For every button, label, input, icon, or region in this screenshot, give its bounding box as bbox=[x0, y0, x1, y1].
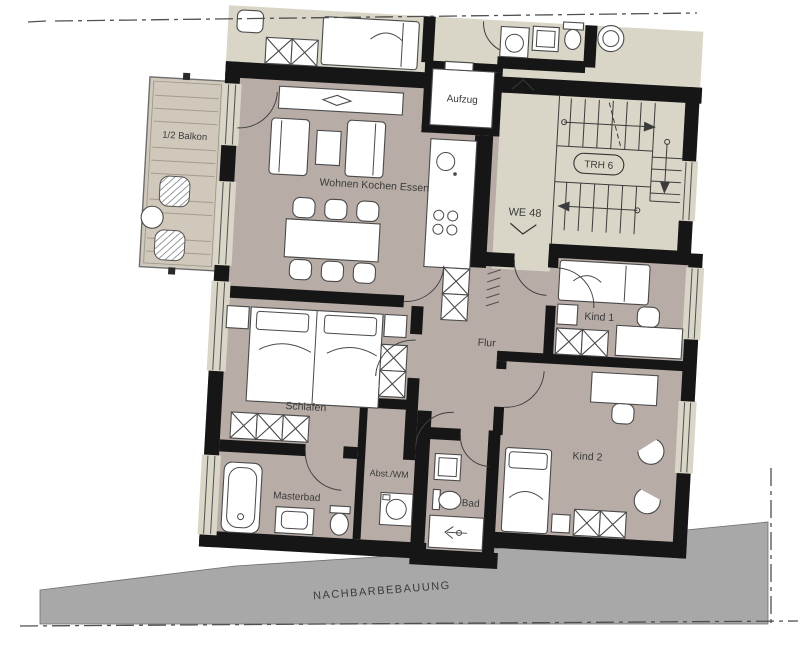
balcony-table bbox=[141, 206, 164, 229]
sink bbox=[532, 26, 559, 51]
washing-machine bbox=[500, 26, 530, 58]
child-room-1-label: Kind 1 bbox=[584, 311, 615, 325]
shower bbox=[428, 515, 484, 550]
wardrobe-module bbox=[581, 329, 608, 356]
bathtub bbox=[221, 462, 263, 534]
window bbox=[677, 161, 698, 222]
nightstand bbox=[551, 514, 570, 533]
chair bbox=[353, 263, 376, 284]
balcony-post bbox=[183, 73, 190, 80]
floor-plan-canvas: 1/2 Balkon bbox=[0, 0, 800, 647]
bedroom-label: Schlafen bbox=[285, 400, 327, 414]
wardrobe-module bbox=[599, 511, 626, 538]
bath-label: Bad bbox=[461, 498, 479, 510]
wardrobe-module bbox=[265, 37, 292, 64]
balcony-chair bbox=[159, 176, 191, 208]
balcony: 1/2 Balkon bbox=[138, 71, 226, 277]
chair bbox=[324, 199, 347, 220]
chair bbox=[237, 10, 264, 33]
bed bbox=[558, 260, 650, 305]
wardrobe-module bbox=[379, 370, 406, 397]
wardrobe-module bbox=[291, 39, 318, 66]
nightstand bbox=[384, 314, 407, 337]
tall-cabinet bbox=[441, 294, 468, 321]
hall-label: Flur bbox=[477, 337, 496, 350]
chair bbox=[611, 403, 634, 424]
balcony-chair bbox=[154, 229, 186, 261]
child-room-2-label: Kind 2 bbox=[572, 450, 603, 464]
desk bbox=[615, 325, 683, 359]
nightstand bbox=[557, 304, 578, 325]
tall-cabinet bbox=[442, 268, 469, 295]
chair bbox=[289, 259, 312, 280]
sink bbox=[275, 507, 314, 535]
unit-label: WE 48 bbox=[508, 206, 542, 220]
bed bbox=[321, 17, 420, 70]
coffee-table bbox=[315, 130, 341, 165]
bed bbox=[501, 447, 552, 533]
dining-table bbox=[284, 219, 380, 262]
wardrobe-module bbox=[380, 344, 407, 371]
sink bbox=[434, 453, 461, 480]
property-line-tick bbox=[28, 21, 46, 22]
stairwell-label: TRH 6 bbox=[584, 159, 614, 172]
wardrobe-module bbox=[282, 415, 309, 442]
balcony-post bbox=[168, 267, 175, 274]
floor-plan-page: 1/2 Balkon bbox=[0, 0, 800, 647]
double-bed bbox=[246, 307, 383, 408]
desk bbox=[591, 372, 659, 406]
chair bbox=[292, 197, 315, 218]
chair bbox=[321, 261, 344, 282]
chair bbox=[637, 307, 660, 328]
sofa bbox=[345, 120, 386, 178]
wardrobe-module bbox=[256, 413, 283, 440]
stairwell-tag: TRH 6 bbox=[573, 153, 624, 176]
window bbox=[219, 83, 241, 146]
nightstand bbox=[226, 306, 249, 329]
wardrobe-module bbox=[573, 509, 600, 536]
dining-set bbox=[283, 197, 381, 284]
sofa bbox=[269, 118, 310, 176]
wardrobe-module bbox=[230, 412, 257, 439]
elevator-label: Aufzug bbox=[446, 94, 478, 107]
building: 1/2 Balkon bbox=[123, 0, 718, 580]
wardrobe-module bbox=[555, 328, 582, 355]
chair bbox=[356, 201, 379, 222]
washing-machine bbox=[379, 492, 413, 526]
